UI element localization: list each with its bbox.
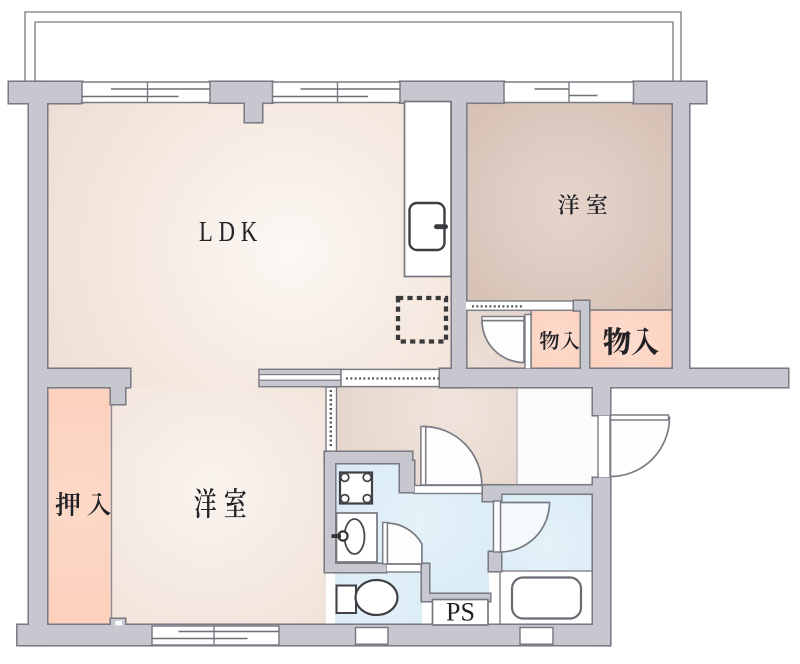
svg-text:PS: PS — [446, 598, 475, 627]
svg-text:LDK: LDK — [199, 215, 263, 247]
